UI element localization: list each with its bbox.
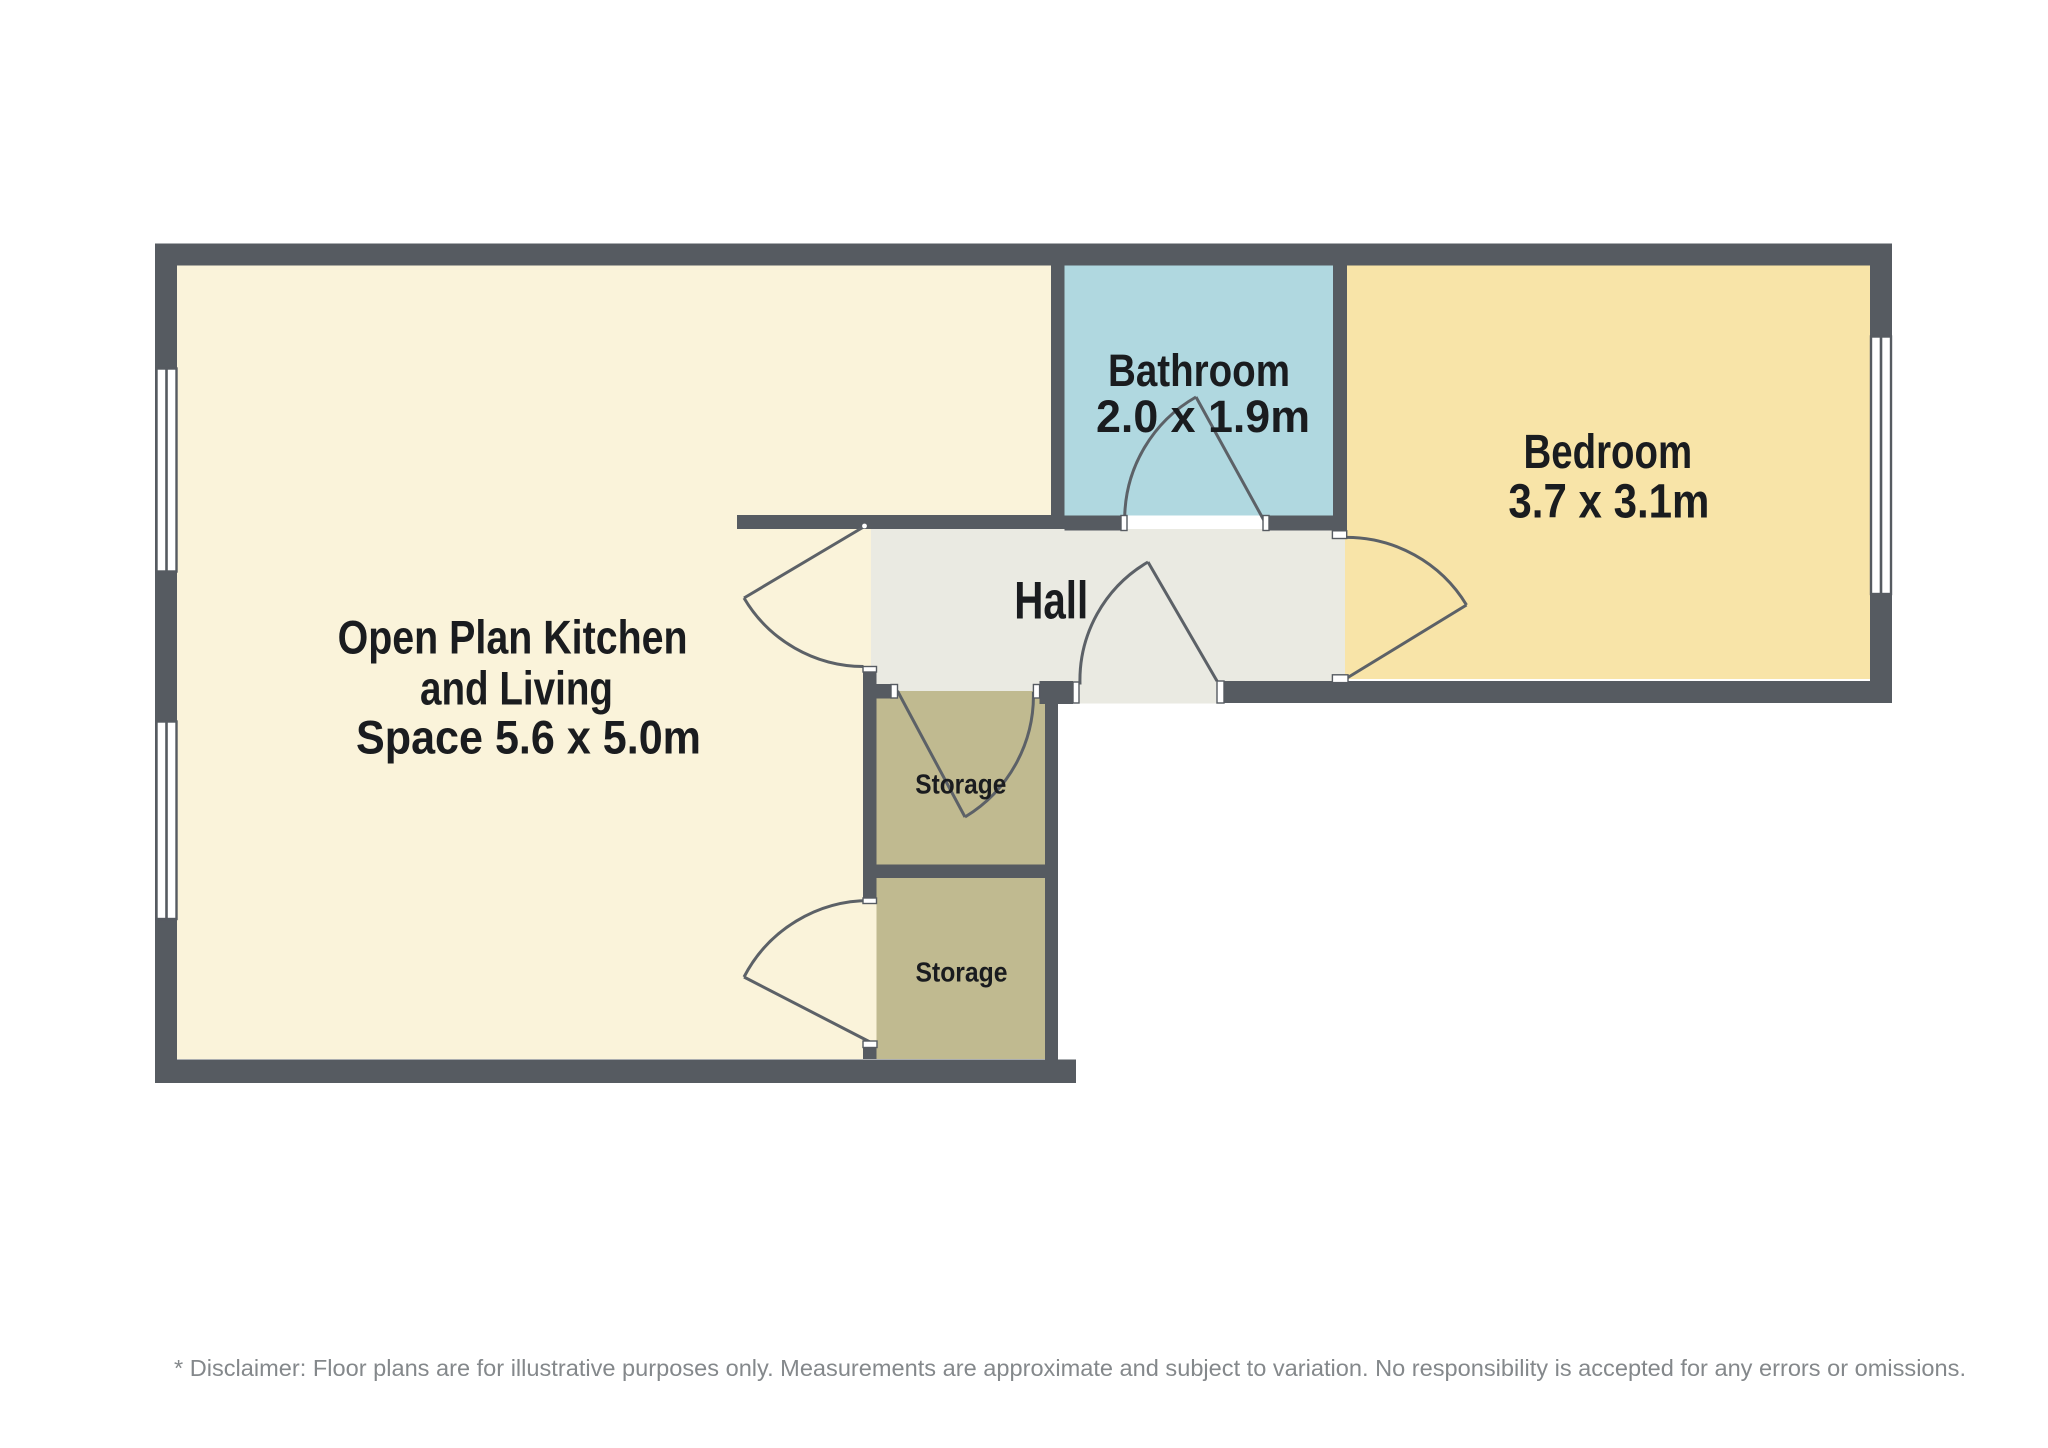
svg-text:Storage: Storage	[915, 769, 1006, 800]
svg-text:Space 5.6 x 5.0m: Space 5.6 x 5.0m	[356, 711, 701, 764]
svg-text:Bathroom: Bathroom	[1108, 345, 1290, 396]
svg-text:Bedroom: Bedroom	[1524, 426, 1693, 479]
svg-text:3.7 x 3.1m: 3.7 x 3.1m	[1508, 475, 1709, 528]
svg-text:2.0 x 1.9m: 2.0 x 1.9m	[1096, 391, 1310, 442]
svg-text:Storage: Storage	[916, 957, 1008, 988]
svg-text:* Disclaimer: Floor plans are: * Disclaimer: Floor plans are for illust…	[174, 1355, 1966, 1381]
svg-text:Hall: Hall	[1014, 571, 1088, 630]
svg-text:and Living: and Living	[420, 661, 613, 714]
svg-text:Open Plan Kitchen: Open Plan Kitchen	[338, 611, 688, 664]
